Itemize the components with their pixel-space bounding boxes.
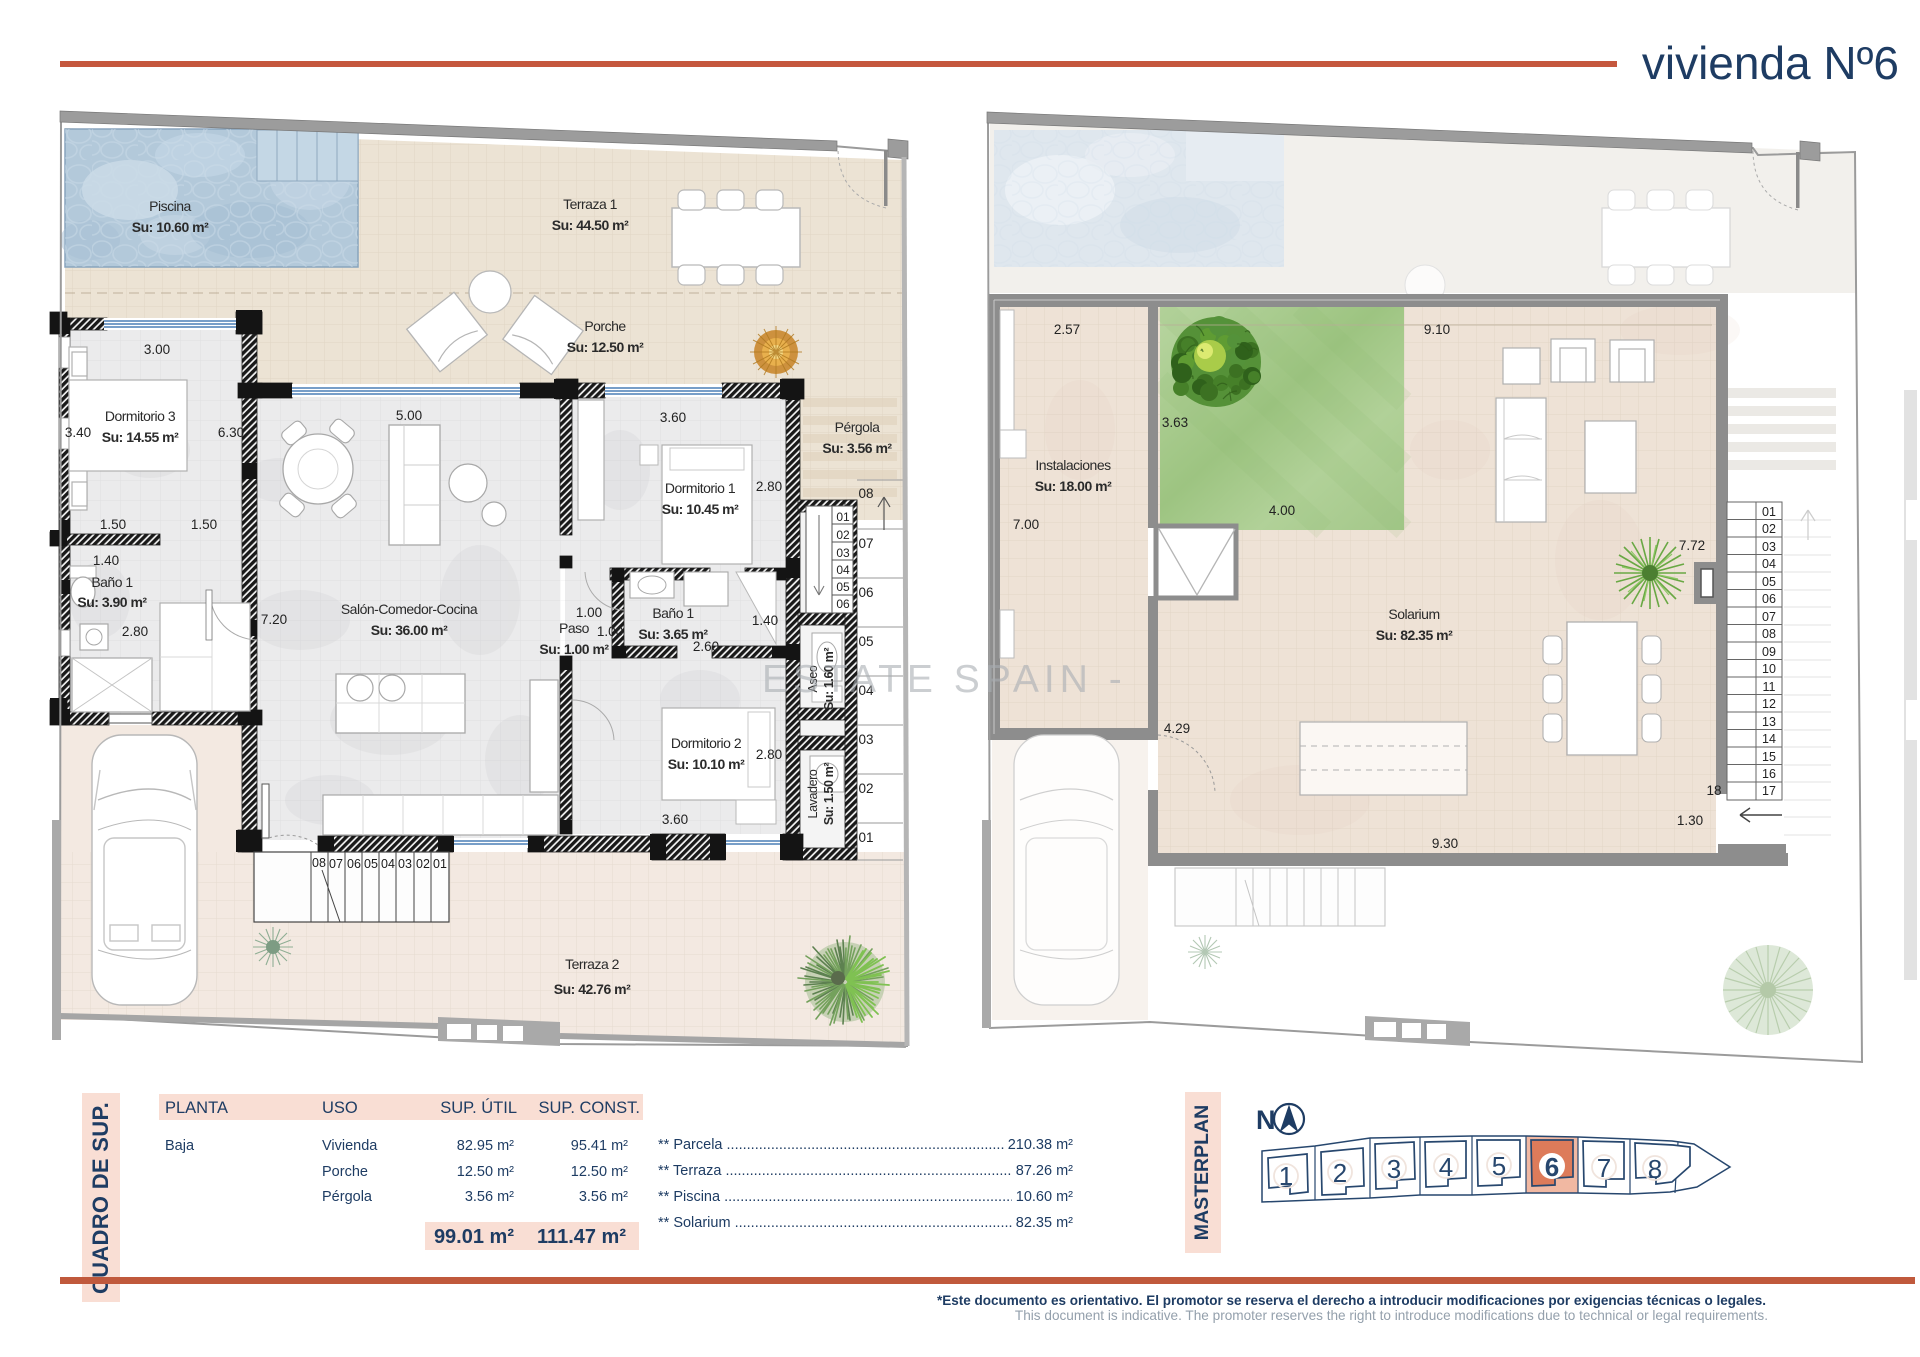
svg-text:Su: 1.50 m²: Su: 1.50 m² <box>822 763 836 826</box>
svg-text:5.00: 5.00 <box>396 408 422 423</box>
svg-text:Pérgola: Pérgola <box>835 419 880 435</box>
svg-text:Su: 3.90 m²: Su: 3.90 m² <box>77 594 147 610</box>
svg-text:07: 07 <box>1762 610 1776 624</box>
svg-text:03: 03 <box>858 732 873 747</box>
svg-text:13: 13 <box>1762 715 1776 729</box>
svg-text:1.00: 1.00 <box>576 605 602 620</box>
svg-text:Su: 10.45 m²: Su: 10.45 m² <box>662 501 739 517</box>
svg-text:2.80: 2.80 <box>756 479 782 494</box>
svg-text:03: 03 <box>1762 540 1776 554</box>
svg-text:Terraza 2: Terraza 2 <box>565 956 620 972</box>
svg-text:07: 07 <box>858 536 873 551</box>
svg-text:01: 01 <box>836 510 850 524</box>
svg-text:04: 04 <box>1762 557 1776 571</box>
svg-text:Instalaciones: Instalaciones <box>1035 457 1111 473</box>
svg-text:04: 04 <box>381 857 395 871</box>
svg-text:3.40: 3.40 <box>65 425 91 440</box>
svg-text:1.40: 1.40 <box>752 613 778 628</box>
svg-text:3.00: 3.00 <box>144 342 170 357</box>
svg-text:12: 12 <box>1762 697 1776 711</box>
svg-text:3.60: 3.60 <box>662 812 688 827</box>
svg-text:Su: 3.56 m²: Su: 3.56 m² <box>822 440 892 456</box>
svg-text:08: 08 <box>858 486 873 501</box>
svg-text:9.30: 9.30 <box>1432 836 1458 851</box>
svg-text:4: 4 <box>1439 1152 1453 1182</box>
svg-text:3.60: 3.60 <box>660 410 686 425</box>
svg-text:09: 09 <box>1762 645 1776 659</box>
svg-text:Piscina: Piscina <box>149 198 191 214</box>
svg-text:1.40: 1.40 <box>93 553 119 568</box>
svg-text:2.57: 2.57 <box>1054 322 1080 337</box>
svg-text:02: 02 <box>858 781 873 796</box>
svg-text:Su: 18.00 m²: Su: 18.00 m² <box>1035 478 1112 494</box>
svg-text:2.80: 2.80 <box>122 624 148 639</box>
svg-text:4.29: 4.29 <box>1164 721 1190 736</box>
svg-text:7: 7 <box>1597 1153 1611 1183</box>
svg-text:Dormitorio 1: Dormitorio 1 <box>665 480 736 496</box>
svg-text:Baño 1: Baño 1 <box>91 574 133 590</box>
svg-text:Su: 10.10 m²: Su: 10.10 m² <box>668 756 745 772</box>
svg-text:Su: 44.50 m²: Su: 44.50 m² <box>552 217 629 233</box>
svg-text:14: 14 <box>1762 732 1776 746</box>
svg-text:18: 18 <box>1706 783 1721 798</box>
svg-text:Su: 1.00 m²: Su: 1.00 m² <box>539 641 609 657</box>
svg-text:05: 05 <box>364 857 378 871</box>
svg-text:05: 05 <box>858 634 873 649</box>
svg-text:Porche: Porche <box>584 318 626 334</box>
svg-text:Lavadero: Lavadero <box>806 769 820 818</box>
svg-text:Salón-Comedor-Cocina: Salón-Comedor-Cocina <box>341 601 478 617</box>
svg-text:01: 01 <box>1762 505 1776 519</box>
svg-text:10: 10 <box>1762 662 1776 676</box>
svg-text:1.50: 1.50 <box>100 517 126 532</box>
svg-text:1: 1 <box>1279 1161 1293 1191</box>
svg-text:Su: 42.76 m²: Su: 42.76 m² <box>554 981 631 997</box>
svg-text:7.72: 7.72 <box>1679 538 1705 553</box>
svg-text:1.30: 1.30 <box>1677 813 1703 828</box>
svg-text:06: 06 <box>858 585 873 600</box>
svg-text:2: 2 <box>1333 1158 1347 1188</box>
svg-text:02: 02 <box>1762 522 1776 536</box>
svg-text:08: 08 <box>1762 627 1776 641</box>
svg-text:3.63: 3.63 <box>1162 415 1188 430</box>
svg-text:2.60: 2.60 <box>693 639 719 654</box>
svg-text:02: 02 <box>416 857 430 871</box>
svg-text:17: 17 <box>1762 784 1776 798</box>
svg-text:1.00: 1.00 <box>597 624 623 639</box>
svg-text:04: 04 <box>836 563 850 577</box>
svg-text:08: 08 <box>312 856 326 870</box>
svg-text:8: 8 <box>1648 1154 1662 1184</box>
svg-text:N: N <box>1256 1105 1276 1135</box>
svg-text:01: 01 <box>858 830 873 845</box>
svg-text:6: 6 <box>1545 1152 1559 1182</box>
svg-text:5: 5 <box>1492 1151 1506 1181</box>
svg-text:01: 01 <box>433 857 447 871</box>
svg-text:07: 07 <box>329 857 343 871</box>
svg-text:3: 3 <box>1387 1154 1401 1184</box>
svg-text:Su: 36.00 m²: Su: 36.00 m² <box>371 622 448 638</box>
svg-text:Su: 82.35 m²: Su: 82.35 m² <box>1376 627 1453 643</box>
svg-text:06: 06 <box>1762 592 1776 606</box>
svg-text:15: 15 <box>1762 750 1776 764</box>
svg-text:Su: 14.55 m²: Su: 14.55 m² <box>102 429 179 445</box>
svg-text:Solarium: Solarium <box>1388 606 1439 622</box>
svg-text:06: 06 <box>347 857 361 871</box>
svg-text:06: 06 <box>836 597 850 611</box>
svg-text:02: 02 <box>836 528 850 542</box>
svg-text:11: 11 <box>1763 680 1776 694</box>
svg-text:9.10: 9.10 <box>1424 322 1450 337</box>
svg-text:7.20: 7.20 <box>261 612 287 627</box>
svg-text:Su: 10.60 m²: Su: 10.60 m² <box>132 219 209 235</box>
svg-text:05: 05 <box>1762 575 1776 589</box>
svg-text:6.30: 6.30 <box>218 425 244 440</box>
svg-text:Su: 12.50 m²: Su: 12.50 m² <box>567 339 644 355</box>
svg-text:16: 16 <box>1762 767 1776 781</box>
svg-text:03: 03 <box>398 857 412 871</box>
svg-text:4.00: 4.00 <box>1269 503 1295 518</box>
svg-text:Terraza 1: Terraza 1 <box>563 196 618 212</box>
svg-text:03: 03 <box>836 546 850 560</box>
svg-text:2.80: 2.80 <box>756 747 782 762</box>
svg-text:1.50: 1.50 <box>191 517 217 532</box>
svg-text:7.00: 7.00 <box>1013 517 1039 532</box>
svg-text:Paso: Paso <box>559 620 590 636</box>
svg-text:05: 05 <box>836 580 850 594</box>
svg-text:Baño 1: Baño 1 <box>652 605 694 621</box>
svg-text:Dormitorio 2: Dormitorio 2 <box>671 735 742 751</box>
svg-text:Dormitorio 3: Dormitorio 3 <box>105 408 176 424</box>
